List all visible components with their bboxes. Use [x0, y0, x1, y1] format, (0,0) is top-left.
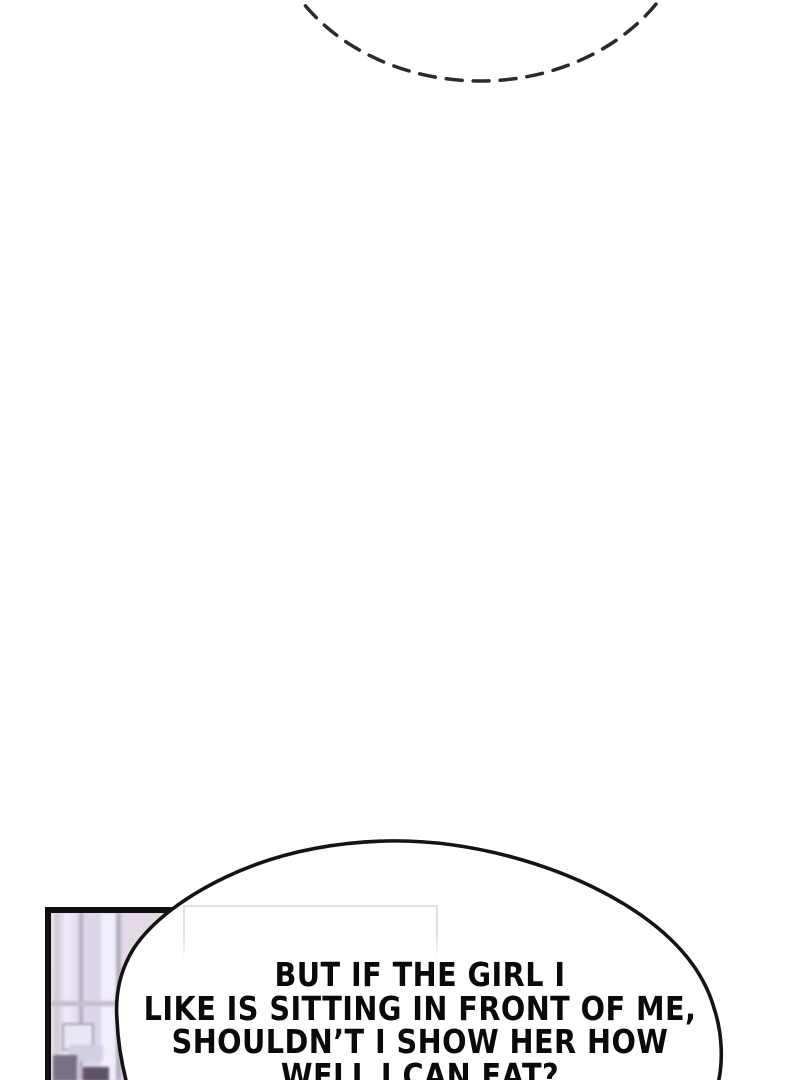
speech-text: BUT IF THE GIRL I LIKE IS SITTING IN FRO… — [116, 958, 725, 1080]
speech-line: WELL I CAN EAT? — [116, 1059, 725, 1080]
scene-shadow — [83, 1067, 109, 1080]
thought-bubble-dashed — [0, 0, 800, 140]
wall-frame — [183, 905, 438, 961]
comic-page: BUT IF THE GIRL I LIKE IS SITTING IN FRO… — [0, 0, 800, 1080]
window-pane — [101, 913, 116, 1080]
scene-shadow — [53, 1055, 77, 1080]
speech-line: SHOULDN’T I SHOW HER HOW — [116, 1025, 725, 1059]
speech-line: BUT IF THE GIRL I — [116, 958, 725, 992]
speech-line: LIKE IS SITTING IN FRONT OF ME, — [116, 992, 725, 1026]
thought-bubble-outline — [267, 0, 693, 81]
